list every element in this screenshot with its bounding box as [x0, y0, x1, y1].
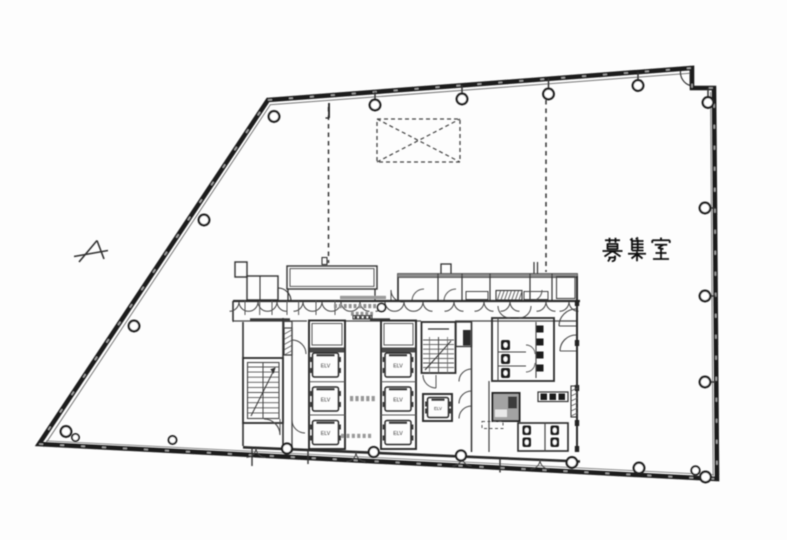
svg-text:ELV: ELV	[393, 431, 403, 437]
svg-text:ELV: ELV	[321, 398, 331, 404]
svg-text:ELV: ELV	[393, 364, 403, 370]
svg-text:ELV: ELV	[321, 364, 331, 370]
svg-text:ELV: ELV	[434, 406, 442, 411]
svg-text:ELV: ELV	[393, 398, 403, 404]
svg-text:ELV: ELV	[321, 431, 331, 437]
